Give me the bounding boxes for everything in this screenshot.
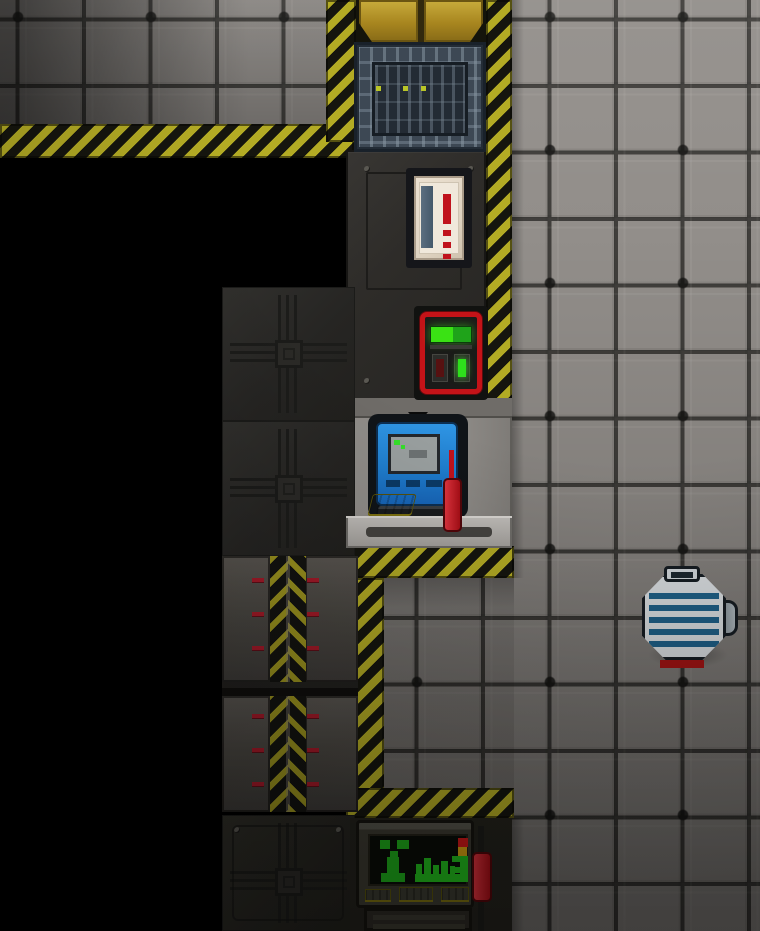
gold-door[interactable] bbox=[356, 0, 486, 46]
cabinet-extinguisher-dot bbox=[443, 254, 451, 259]
glyph-leaf-right bbox=[397, 840, 409, 849]
computer-keyboard[interactable] bbox=[367, 494, 416, 516]
graph-baseline bbox=[415, 874, 463, 882]
graph-bar bbox=[424, 858, 431, 874]
gauge-green-bar bbox=[460, 856, 468, 882]
floorbot-visor bbox=[671, 572, 693, 578]
blast-panel bbox=[222, 556, 270, 682]
console-keys-left bbox=[365, 889, 391, 902]
stand-slat bbox=[373, 924, 465, 929]
gauge-tooth bbox=[452, 867, 461, 873]
plating-frame bbox=[232, 825, 344, 921]
computer-button-strip bbox=[426, 480, 442, 487]
floorbot-foot-flare-right bbox=[682, 660, 704, 668]
monitor-screen bbox=[368, 834, 468, 886]
gold-door-seam bbox=[418, 0, 424, 42]
gauge-yellow bbox=[458, 847, 467, 856]
hazard-wall-window-left bbox=[326, 0, 356, 142]
grille-window[interactable] bbox=[354, 42, 486, 152]
gold-door-left-panel bbox=[359, 0, 418, 42]
monitor-console[interactable] bbox=[356, 820, 474, 908]
computer-screen bbox=[388, 434, 440, 474]
plating-tile bbox=[222, 421, 355, 556]
table-slot bbox=[366, 527, 492, 537]
extinguisher-cabinet[interactable] bbox=[406, 168, 472, 268]
window-light-1 bbox=[376, 86, 381, 91]
gauge-tooth bbox=[452, 856, 461, 862]
console-stand bbox=[364, 908, 472, 931]
cabinet-extinguisher-body bbox=[443, 194, 451, 224]
window-light-3 bbox=[421, 86, 426, 91]
window-glass bbox=[372, 62, 468, 136]
blast-doors[interactable] bbox=[222, 556, 358, 812]
hazard-wall-bottom-horizontal bbox=[346, 788, 514, 818]
graph-bar bbox=[416, 864, 422, 874]
hazard-wall-below-console bbox=[346, 546, 514, 578]
apc-button-off[interactable] bbox=[432, 354, 448, 382]
screen-pixel-green bbox=[401, 445, 405, 449]
computer-button-strip bbox=[386, 480, 400, 487]
stand-slat bbox=[373, 915, 465, 920]
rivet bbox=[364, 166, 370, 172]
console-table[interactable] bbox=[346, 516, 512, 548]
console-keys-mid bbox=[399, 887, 433, 902]
apc-unit[interactable] bbox=[414, 306, 488, 400]
plating-tile-bottom bbox=[222, 815, 355, 931]
plating-tile bbox=[222, 287, 355, 421]
floorbot-stripes bbox=[649, 593, 719, 647]
glyph-stem bbox=[387, 857, 399, 873]
cabinet-extinguisher-dot bbox=[443, 230, 451, 236]
blast-tile-seam bbox=[222, 682, 358, 696]
console-keys-right bbox=[441, 887, 469, 902]
graph-bar bbox=[433, 865, 439, 874]
gauge-red bbox=[458, 838, 468, 847]
window-light-2 bbox=[403, 86, 408, 91]
floorbot-head bbox=[664, 566, 700, 582]
rivet bbox=[364, 378, 370, 384]
computer-button-strip bbox=[406, 480, 420, 487]
apc-display-base bbox=[430, 345, 472, 349]
gold-door-right-panel bbox=[424, 0, 483, 42]
cabinet-glass-stripe bbox=[421, 186, 433, 248]
apc-button-off-lamp bbox=[436, 359, 444, 377]
floorbot-foot-flare-left bbox=[660, 660, 682, 668]
fire-extinguisher[interactable] bbox=[443, 478, 462, 532]
screen-slot bbox=[409, 450, 427, 458]
apc-button-on-lamp bbox=[458, 359, 466, 377]
graph-bar bbox=[441, 861, 448, 874]
apc-button-on[interactable] bbox=[454, 354, 470, 382]
apc-frame bbox=[420, 312, 482, 394]
apc-charge-display bbox=[430, 326, 472, 343]
floorbot[interactable] bbox=[642, 574, 726, 660]
fire-extinguisher-bottom[interactable] bbox=[472, 852, 492, 902]
blast-panel bbox=[305, 556, 358, 682]
hazard-wall-top-left bbox=[0, 124, 354, 158]
glyph-leaf-left bbox=[380, 840, 390, 849]
game-viewport bbox=[0, 0, 760, 931]
screen-pixel-green bbox=[394, 440, 400, 445]
glyph-base bbox=[381, 873, 405, 882]
cabinet-extinguisher-dot bbox=[443, 242, 451, 248]
